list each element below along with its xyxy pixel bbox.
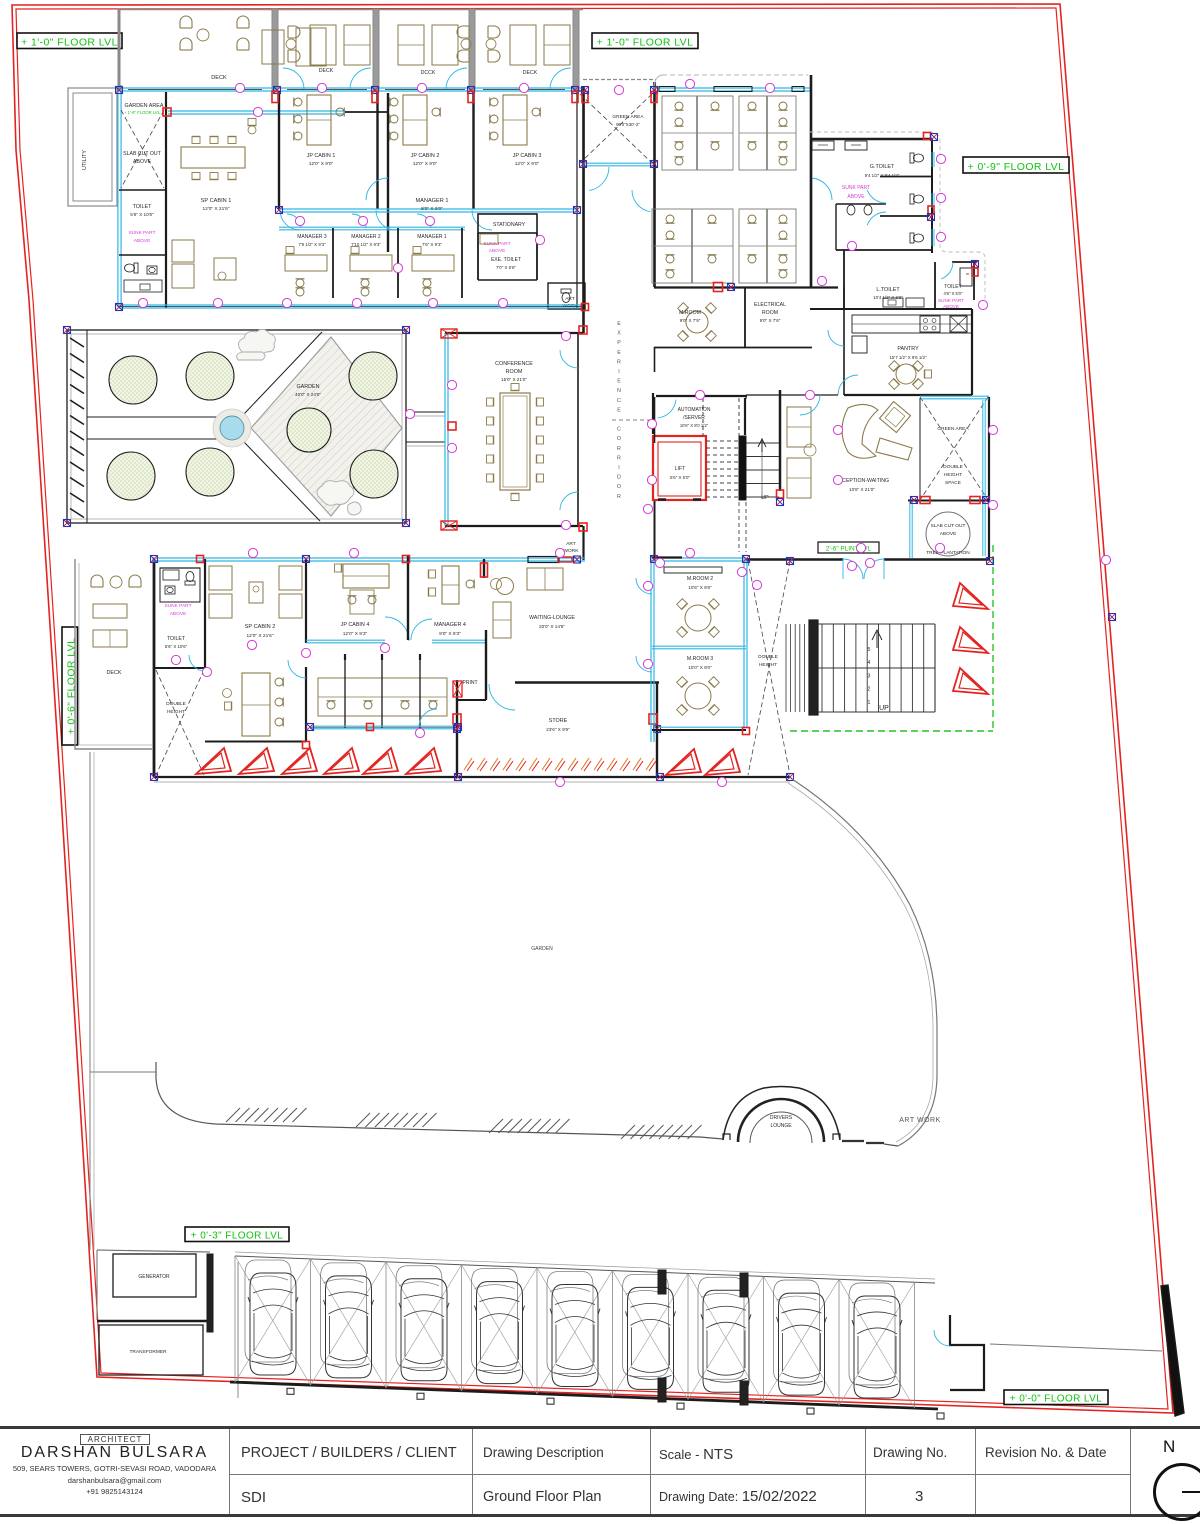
svg-text:SLAB CUT OUT: SLAB CUT OUT	[123, 151, 161, 157]
svg-text:N: N	[617, 388, 621, 394]
svg-text:DRIVERS: DRIVERS	[770, 1115, 793, 1121]
svg-text:SP CABIN 2: SP CABIN 2	[245, 624, 276, 630]
svg-text:ART: ART	[565, 296, 575, 302]
svg-text:5'6" X 10'6": 5'6" X 10'6"	[130, 212, 154, 217]
svg-text:JP CABIN 4: JP CABIN 4	[341, 622, 370, 628]
svg-text:I: I	[618, 369, 620, 375]
svg-text:4: 4	[868, 660, 871, 666]
svg-text:MANAGER 1: MANAGER 1	[416, 198, 449, 204]
svg-text:LIFT: LIFT	[675, 466, 686, 472]
svg-text:HEIGHT: HEIGHT	[167, 709, 185, 715]
svg-text:7'9 1/2" X 9'3": 7'9 1/2" X 9'3"	[298, 242, 326, 247]
svg-text:R: R	[617, 446, 621, 452]
svg-text:STORE: STORE	[549, 718, 568, 724]
svg-text:JP CABIN 3: JP CABIN 3	[513, 153, 542, 159]
svg-text:GARDEN: GARDEN	[296, 384, 319, 390]
svg-text:7'6" X 9'3": 7'6" X 9'3"	[422, 242, 442, 247]
svg-text:WAITING-LOUNGE: WAITING-LOUNGE	[529, 615, 575, 621]
svg-text:DECK: DECK	[107, 670, 122, 676]
svg-text:HEIGHT: HEIGHT	[759, 662, 777, 668]
svg-text:DCCK: DCCK	[421, 70, 436, 76]
svg-text:DECK: DECK	[211, 75, 227, 81]
svg-text:G.TOILET: G.TOILET	[870, 164, 895, 170]
svg-text:CONFERENCE: CONFERENCE	[495, 361, 533, 367]
svg-text:ABOVE: ABOVE	[170, 611, 187, 617]
svg-text:5'6" X 10'6": 5'6" X 10'6"	[165, 644, 188, 649]
svg-text:E: E	[617, 407, 621, 413]
svg-text:P: P	[617, 340, 621, 346]
svg-text:9'0" X 9'3": 9'0" X 9'3"	[439, 631, 461, 637]
svg-text:7'0" X 5'6": 7'0" X 5'6"	[496, 265, 516, 270]
svg-text:E: E	[617, 379, 621, 385]
svg-text:RECEPTION-WAITING: RECEPTION-WAITING	[835, 478, 889, 484]
svg-text:DOUBLE: DOUBLE	[166, 701, 186, 707]
svg-text:MANAGER 2: MANAGER 2	[351, 234, 381, 240]
svg-text:SUNK PART: SUNK PART	[164, 603, 191, 609]
svg-text:12'0" X 21'6": 12'0" X 21'6"	[246, 633, 273, 639]
svg-text:+ 0'-3" FLOOR LVL: + 0'-3" FLOOR LVL	[191, 1230, 283, 1241]
svg-text:L.TOILET: L.TOILET	[876, 287, 900, 293]
svg-text:GARDEN AREA: GARDEN AREA	[125, 103, 164, 109]
svg-text:+ 0'-0" FLOOR LVL: + 0'-0" FLOOR LVL	[1010, 1393, 1102, 1404]
svg-text:3: 3	[868, 673, 871, 679]
svg-text:C: C	[617, 398, 621, 404]
svg-text:M.ROOM: M.ROOM	[679, 310, 701, 316]
svg-text:TOILET: TOILET	[133, 204, 152, 210]
svg-text:ABOVE: ABOVE	[489, 248, 506, 254]
svg-text:GARDEN: GARDEN	[531, 946, 553, 952]
svg-text:UP: UP	[761, 495, 769, 501]
svg-text:DECK: DECK	[523, 70, 538, 76]
svg-text:+ 1'-0" FLOOR LVL: + 1'-0" FLOOR LVL	[597, 36, 694, 48]
svg-text:X: X	[617, 331, 621, 337]
svg-text:15'7 1/2" X 9'6 1/2": 15'7 1/2" X 9'6 1/2"	[889, 355, 926, 360]
svg-text:E: E	[617, 350, 621, 356]
svg-text:12'0" X 9'0": 12'0" X 9'0"	[515, 161, 540, 167]
svg-text:DOUBLE: DOUBLE	[758, 654, 778, 660]
svg-text:12'0" X 9'3": 12'0" X 9'3"	[343, 631, 368, 637]
svg-text:12'0" X 9'0": 12'0" X 9'0"	[413, 161, 438, 167]
svg-text:12'0" X 9'0": 12'0" X 9'0"	[309, 161, 334, 167]
svg-text:O: O	[617, 484, 621, 490]
svg-text:GREEN AREA: GREEN AREA	[937, 426, 969, 432]
svg-text:O: O	[617, 436, 621, 442]
svg-text:MANAGER 3: MANAGER 3	[297, 234, 327, 240]
svg-text:AUTOMATION: AUTOMATION	[678, 407, 711, 413]
svg-text:ABOVE: ABOVE	[133, 159, 151, 165]
svg-text:12'0" X 21'6": 12'0" X 21'6"	[202, 206, 229, 212]
svg-text:8'0" X 9'0": 8'0" X 9'0"	[421, 206, 443, 212]
svg-text:MANAGER 4: MANAGER 4	[434, 622, 466, 628]
svg-text:9'0" X 7'6": 9'0" X 7'6"	[760, 318, 781, 323]
svg-text:2: 2	[868, 687, 871, 693]
svg-text:LOUNGE: LOUNGE	[770, 1123, 792, 1129]
svg-text:23'6" X 9'9": 23'6" X 9'9"	[546, 727, 570, 732]
svg-text:5: 5	[868, 647, 871, 653]
svg-text:GREEN AREA: GREEN AREA	[612, 114, 644, 120]
svg-text:TRANSFORMER: TRANSFORMER	[129, 1349, 167, 1355]
svg-text:M.ROOM 2: M.ROOM 2	[687, 576, 713, 582]
svg-text:UTILITY: UTILITY	[82, 150, 88, 170]
svg-text:TOILET: TOILET	[944, 284, 961, 290]
svg-text:9'0" X 7'9": 9'0" X 7'9"	[680, 318, 701, 323]
svg-text:10'6" X 21'0": 10'6" X 21'0"	[849, 487, 875, 492]
svg-text:ELECTRICAL: ELECTRICAL	[754, 302, 786, 308]
svg-text:R: R	[617, 455, 621, 461]
svg-text:MANAGER 1: MANAGER 1	[417, 234, 447, 240]
svg-text:JP CABIN 2: JP CABIN 2	[411, 153, 440, 159]
svg-text:SPACE: SPACE	[945, 480, 961, 486]
svg-text:20'0" X 14'6": 20'0" X 14'6"	[539, 624, 565, 629]
svg-text:WORK: WORK	[564, 548, 580, 554]
svg-text:5'6" X 6'0": 5'6" X 6'0"	[670, 475, 690, 480]
svg-text:DOUBLE: DOUBLE	[943, 464, 963, 470]
svg-text:EXE. TOILET: EXE. TOILET	[491, 257, 521, 263]
svg-text:10'6" X 8'0 1/2": 10'6" X 8'0 1/2"	[680, 423, 709, 428]
svg-text:TREE PLANTATION: TREE PLANTATION	[926, 550, 970, 556]
svg-text:4'6" X 5'0": 4'6" X 5'0"	[943, 291, 963, 296]
svg-text:ABOVE: ABOVE	[847, 194, 865, 200]
svg-text:R: R	[617, 359, 621, 365]
svg-text:PRINT: PRINT	[463, 680, 478, 686]
svg-text:90'0"X30'-2": 90'0"X30'-2"	[616, 122, 640, 127]
svg-text:UP: UP	[879, 705, 889, 712]
svg-text:PANTRY: PANTRY	[897, 346, 919, 352]
svg-text:HEIGHT: HEIGHT	[944, 472, 962, 478]
svg-text:SUNK PART: SUNK PART	[842, 185, 870, 191]
svg-text:D: D	[617, 475, 621, 481]
svg-text:SUNK PART: SUNK PART	[128, 230, 155, 236]
svg-text:1: 1	[868, 700, 871, 706]
svg-text:+ 1'-0" FLOOR LVL: + 1'-0" FLOOR LVL	[21, 36, 118, 48]
svg-text:10'0" X 9'0": 10'0" X 9'0"	[688, 665, 712, 670]
svg-text:ABOVE: ABOVE	[134, 238, 151, 244]
svg-text:40'0" X 24'0": 40'0" X 24'0"	[295, 392, 321, 397]
svg-text:C: C	[617, 427, 621, 433]
svg-text:/SERVER: /SERVER	[683, 415, 705, 421]
svg-text:10'6" X 9'6": 10'6" X 9'6"	[688, 585, 712, 590]
svg-text:I: I	[618, 465, 620, 471]
svg-text:15'0" X 21'0": 15'0" X 21'0"	[501, 377, 527, 382]
svg-text:ROOM: ROOM	[762, 310, 778, 316]
svg-text:GENERATOR: GENERATOR	[138, 1274, 170, 1280]
svg-text:ABOVE: ABOVE	[943, 304, 959, 309]
svg-text:ABOVE: ABOVE	[940, 531, 957, 537]
svg-text:STATIONARY: STATIONARY	[493, 222, 526, 228]
svg-text:+ 0'-9" FLOOR LVL: + 0'-9" FLOOR LVL	[968, 161, 1065, 173]
svg-text:JP CABIN 1: JP CABIN 1	[307, 153, 336, 159]
svg-text:ROOM: ROOM	[506, 369, 523, 375]
svg-text:R: R	[617, 494, 621, 500]
svg-text:SUNK PART: SUNK PART	[938, 298, 964, 303]
svg-text:TOILET: TOILET	[167, 636, 186, 642]
svg-text:SLAB CUT OUT: SLAB CUT OUT	[931, 523, 966, 529]
svg-text:DECK: DECK	[319, 68, 334, 74]
svg-text:ART WORK: ART WORK	[899, 1117, 940, 1124]
svg-text:10'4 1/2" X 6'6": 10'4 1/2" X 6'6"	[873, 295, 903, 300]
svg-text:M.ROOM 3: M.ROOM 3	[687, 656, 713, 662]
svg-text:E: E	[617, 321, 621, 327]
svg-text:+ 1'-6" FLOOR LVL: + 1'-6" FLOOR LVL	[124, 110, 161, 115]
svg-text:ART: ART	[566, 541, 576, 547]
svg-text:SP CABIN 1: SP CABIN 1	[201, 198, 232, 204]
